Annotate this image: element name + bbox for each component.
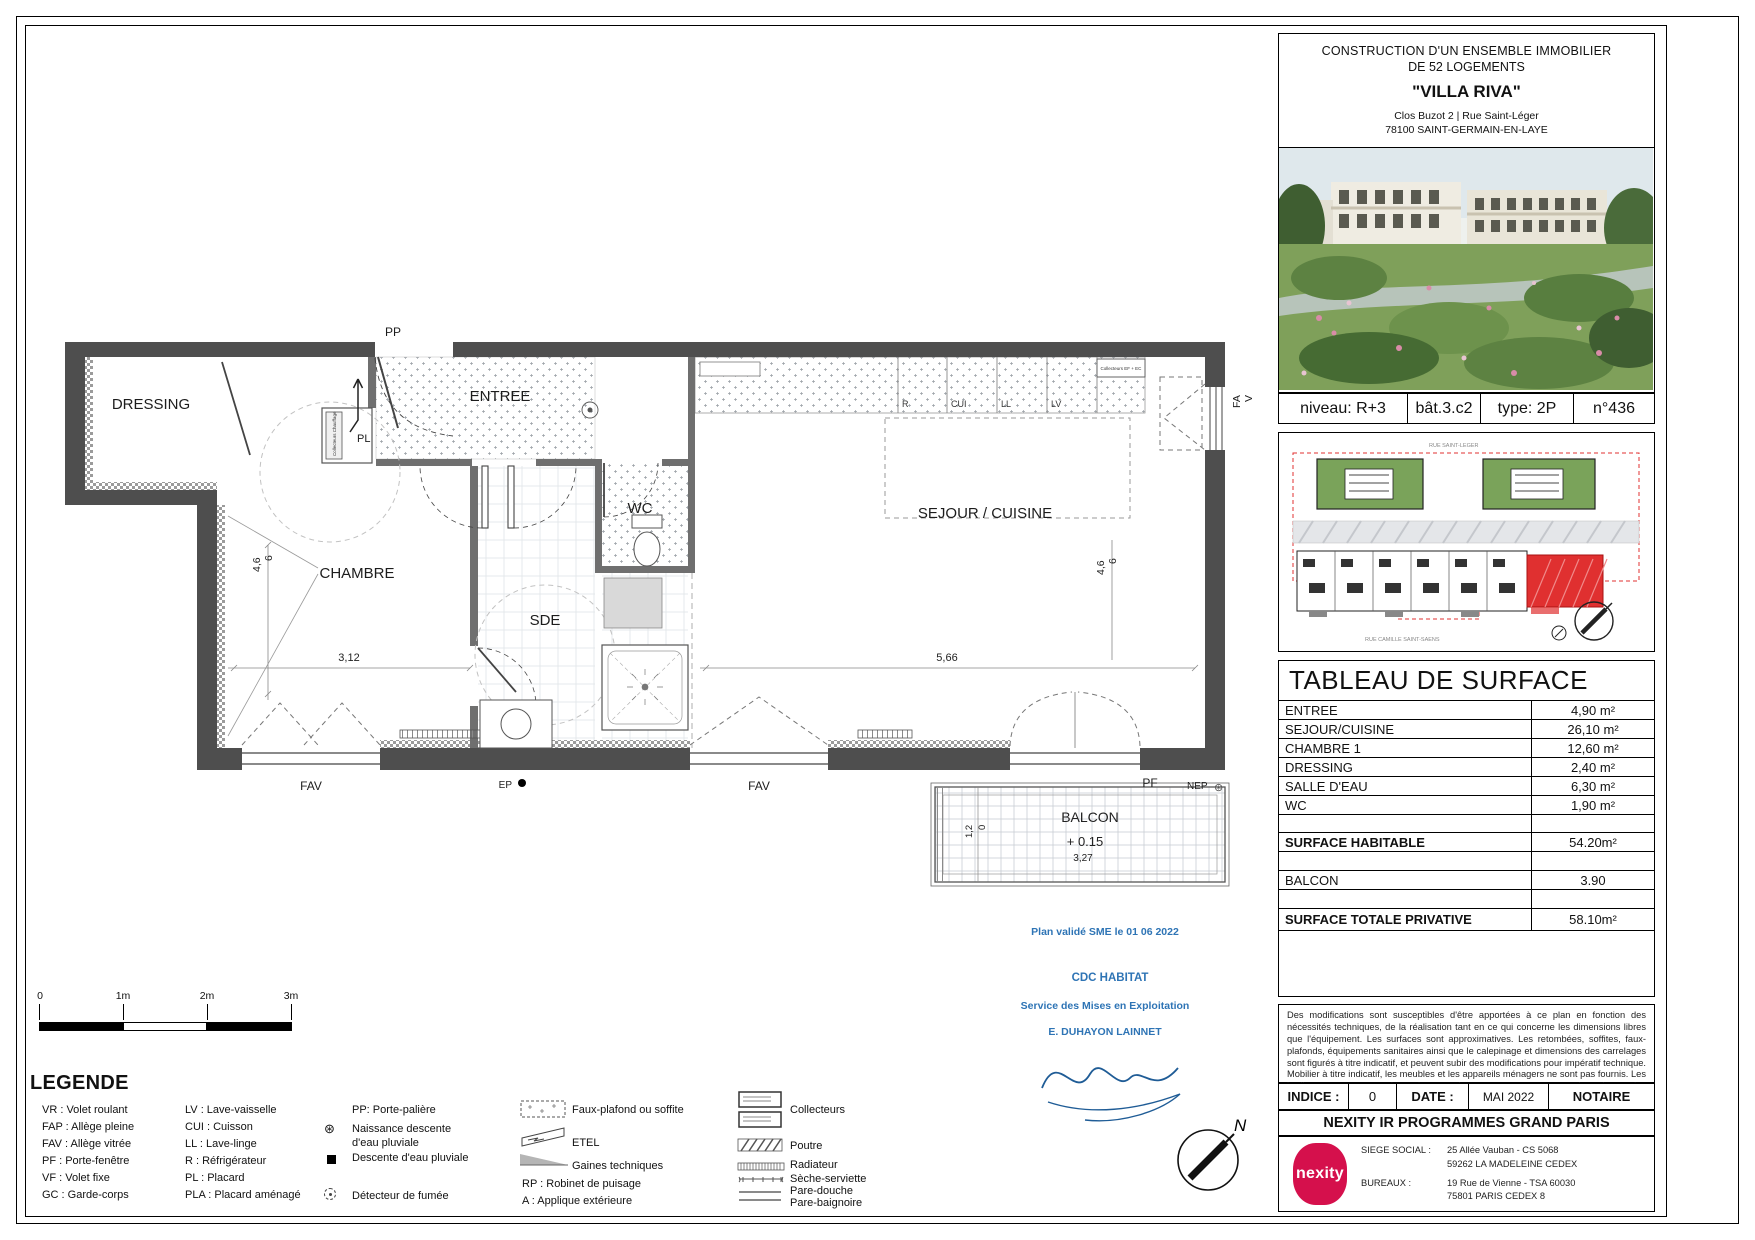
dim-sejour-h1: 4,6 <box>1095 560 1107 575</box>
indice-label: INDICE : <box>1279 1084 1349 1109</box>
legend-item: LV : Lave-vaisselle <box>185 1104 277 1116</box>
label-fav2: FAV <box>748 779 770 793</box>
notes-text: Des modifications sont susceptibles d'êt… <box>1278 1004 1655 1083</box>
dim-sejour-h2: 6 <box>1107 558 1119 564</box>
row-value: 4,90 m² <box>1532 701 1654 719</box>
gaines-icon <box>518 1152 570 1167</box>
floor-finishes <box>376 357 1145 748</box>
surface-table: TABLEAU DE SURFACE ENTREE4,90 m² SEJOUR/… <box>1278 660 1655 997</box>
sde-shower <box>602 645 688 730</box>
row-label: CHAMBRE 1 <box>1279 739 1532 757</box>
radiateur-icon <box>737 1162 785 1171</box>
siege-line1: 25 Allée Vauban - CS 5068 <box>1447 1144 1577 1157</box>
project-name: "VILLA RIVA" <box>1412 82 1521 102</box>
row-label: SURFACE HABITABLE <box>1279 833 1532 851</box>
table-row-total: SURFACE TOTALE PRIVATIVE58.10m² <box>1279 909 1654 931</box>
wc-toilet <box>632 515 662 566</box>
label-entree: ENTREE <box>470 388 531 405</box>
legend-item-pare-douche: Pare-douche <box>790 1185 853 1197</box>
row-value: 58.10m² <box>1532 909 1654 930</box>
legend-item-rp: RP : Robinet de puisage <box>522 1178 641 1190</box>
fridge-label: R <box>902 399 909 409</box>
project-address2: 78100 SAINT-GERMAIN-EN-LAYE <box>1385 123 1548 137</box>
validation-line3: Service des Mises en Exploitation <box>995 1000 1215 1012</box>
balcony-width-dim: 3,27 <box>1073 853 1093 864</box>
legend-item-descente: Descente d'eau pluviale <box>352 1152 470 1166</box>
site-compass-icon <box>1552 602 1613 640</box>
table-row-empty <box>1279 815 1654 833</box>
window-fa <box>1205 387 1225 450</box>
unit-building: bât.3.c2 <box>1408 394 1481 423</box>
row-value: 6,30 m² <box>1532 777 1654 795</box>
label-dressing: DRESSING <box>112 396 190 413</box>
table-row: SEJOUR/CUISINE26,10 m² <box>1279 720 1654 739</box>
street-band <box>1293 521 1639 543</box>
label-sde: SDE <box>530 612 561 629</box>
legend-item: FAP : Allège pleine <box>42 1121 134 1133</box>
legend-item: R : Réfrigérateur <box>185 1155 266 1167</box>
table-row-habitable: SURFACE HABITABLE54.20m² <box>1279 833 1654 852</box>
legend-item: CUI : Cuisson <box>185 1121 253 1133</box>
revision-row: INDICE : 0 DATE : MAI 2022 NOTAIRE <box>1278 1083 1655 1110</box>
naissance-icon: ⊛ <box>324 1122 335 1136</box>
label-chambre: CHAMBRE <box>319 565 394 582</box>
faux-plafond-icon <box>520 1100 566 1118</box>
row-label: SURFACE TOTALE PRIVATIVE <box>1279 909 1532 930</box>
label-fav1: FAV <box>300 779 322 793</box>
table-row: WC1,90 m² <box>1279 796 1654 815</box>
date-value: MAI 2022 <box>1469 1084 1549 1109</box>
row-value: 26,10 m² <box>1532 720 1654 738</box>
table-row: ENTREE4,90 m² <box>1279 701 1654 720</box>
bureaux-label: BUREAUX : <box>1361 1177 1443 1190</box>
sde-washbasin-unit <box>604 578 662 628</box>
row-label: WC <box>1279 796 1532 814</box>
hob-label: CUI <box>951 399 967 409</box>
legend-item-naissance: Naissance descente d'eau pluviale <box>352 1123 470 1151</box>
table-row-empty <box>1279 852 1654 871</box>
legend-item-applique: A : Applique extérieure <box>522 1195 632 1207</box>
sde-vanity <box>480 700 552 748</box>
dishwasher-label: LV <box>1051 399 1061 409</box>
etel-icon <box>520 1126 566 1148</box>
scale-bar: 0 1m 2m 3m <box>38 990 292 1040</box>
validation-line4: E. DUHAYON LAINNET <box>1010 1026 1200 1038</box>
lower-buildings <box>1297 551 1527 617</box>
label-ep: EP <box>499 780 513 791</box>
legend-item: PLA : Placard aménagé <box>185 1189 301 1201</box>
project-address1: Clos Buzot 2 | Rue Saint-Léger <box>1394 109 1539 123</box>
dim-chambre-h1: 4,6 <box>251 557 263 572</box>
descente-icon <box>327 1155 336 1164</box>
row-value: 12,60 m² <box>1532 739 1654 757</box>
poutre-icon <box>737 1138 783 1152</box>
balcony-level: + 0.15 <box>1067 834 1104 849</box>
seche-serviette-icon <box>737 1175 785 1184</box>
label-pp: PP <box>385 325 401 339</box>
legend-item-etel: ETEL <box>572 1137 600 1149</box>
legend-title: LEGENDE <box>30 1072 129 1095</box>
legend-item-seche: Sèche-serviette <box>790 1173 866 1185</box>
table-row-balcon: BALCON3.90 <box>1279 871 1654 890</box>
ep-dot <box>518 779 526 787</box>
unit-info-row: niveau: R+3 bât.3.c2 type: 2P n°436 <box>1278 393 1655 424</box>
validation-line1: Plan validé SME le 01 06 2022 <box>995 926 1215 938</box>
balcony-depth-dim1: 1,2 <box>964 825 975 838</box>
legend-item-pare-baignoire: Pare-baignoire <box>790 1197 862 1209</box>
unit-level: niveau: R+3 <box>1279 394 1408 423</box>
company-name-row: NEXITY IR PROGRAMMES GRAND PARIS <box>1278 1110 1655 1136</box>
legend-item: PF : Porte-fenêtre <box>42 1155 129 1167</box>
washer-label: LL <box>1001 399 1011 409</box>
street-top-label: RUE SAINT-LEGER <box>1429 443 1479 449</box>
surface-table-title: TABLEAU DE SURFACE <box>1279 661 1654 701</box>
collecteurs-icon <box>737 1090 783 1130</box>
dim-chambre-w: 3,12 <box>338 652 359 664</box>
floor-plan: Collecteurs EF + EC R CUI LL LV <box>0 315 1270 895</box>
project-line1: CONSTRUCTION D'UN ENSEMBLE IMMOBILIER <box>1322 44 1612 58</box>
row-label: SALLE D'EAU <box>1279 777 1532 795</box>
legend-item: PL : Placard <box>185 1172 245 1184</box>
row-label: SEJOUR/CUISINE <box>1279 720 1532 738</box>
highlighted-unit <box>1527 555 1607 614</box>
balcony-label: BALCON <box>1061 809 1119 825</box>
nep-symbol: ⊛ <box>1214 782 1223 794</box>
detecteur-icon <box>324 1188 336 1200</box>
legend-item-pp: PP: Porte-palière <box>352 1104 436 1116</box>
pl-collector-label: Collecteurs Chauffage <box>332 411 337 456</box>
row-value: 54.20m² <box>1532 833 1654 851</box>
row-label: BALCON <box>1279 871 1532 889</box>
scale-2m: 2m <box>200 990 215 1002</box>
siege-label: SIEGE SOCIAL : <box>1361 1144 1443 1157</box>
kitchen-collector-label: Collecteurs EF + EC <box>1101 366 1143 371</box>
legend-item-detecteur: Détecteur de fumée <box>352 1190 449 1202</box>
perspective-image <box>1278 148 1655 393</box>
legend-item-poutre: Poutre <box>790 1140 822 1152</box>
street-bottom-label: RUE CAMILLE SAINT-SAENS <box>1365 637 1440 643</box>
label-v: V <box>1243 395 1255 402</box>
upper-buildings <box>1317 459 1595 509</box>
site-plan: RUE SAINT-LEGER RUE CAMILLE SAINT-SAENS <box>1278 432 1655 652</box>
row-value: 1,90 m² <box>1532 796 1654 814</box>
row-label: DRESSING <box>1279 758 1532 776</box>
legend-item-radiateur: Radiateur <box>790 1159 838 1171</box>
balcony-depth-dim2: 0 <box>977 825 988 830</box>
compass-north-label: N <box>1234 1116 1247 1135</box>
company-addresses: SIEGE SOCIAL : 25 Allée Vauban - CS 5068… <box>1361 1144 1577 1204</box>
window-pf <box>1010 748 1140 770</box>
window-fav1 <box>242 748 380 770</box>
label-pf: PF <box>1142 776 1157 790</box>
table-row: SALLE D'EAU6,30 m² <box>1279 777 1654 796</box>
row-value: 2,40 m² <box>1532 758 1654 776</box>
notaire-label: NOTAIRE <box>1549 1084 1654 1109</box>
leader-lines <box>228 516 318 736</box>
label-sejour: SEJOUR / CUISINE <box>918 505 1052 522</box>
north-compass: N <box>1162 1105 1262 1205</box>
table-row-empty <box>1279 890 1654 909</box>
label-wc: WC <box>628 500 653 517</box>
legend-item: FAV : Allège vitrée <box>42 1138 131 1150</box>
indice-value: 0 <box>1349 1084 1397 1109</box>
legend-item: VR : Volet roulant <box>42 1104 128 1116</box>
unit-number: n°436 <box>1574 394 1654 423</box>
legend-item: LL : Lave-linge <box>185 1138 257 1150</box>
label-fa: FA <box>1231 395 1243 408</box>
dim-chambre-h2: 6 <box>263 555 275 561</box>
scale-0: 0 <box>37 990 43 1002</box>
table-row: CHAMBRE 112,60 m² <box>1279 739 1654 758</box>
dimension-lines <box>228 540 1198 700</box>
legend-item-gaines: Gaines techniques <box>572 1160 663 1172</box>
legend-item-faux-plafond: Faux-plafond ou soffite <box>572 1104 684 1116</box>
validation-line2: CDC HABITAT <box>1020 972 1200 984</box>
nexity-logo: nexity <box>1293 1143 1347 1205</box>
bureaux-line1: 19 Rue de Vienne - TSA 60030 <box>1447 1177 1577 1190</box>
unit-type: type: 2P <box>1481 394 1574 423</box>
row-value: 3.90 <box>1532 871 1654 889</box>
pare-douche-icon <box>737 1189 783 1203</box>
date-label: DATE : <box>1397 1084 1469 1109</box>
row-label: ENTREE <box>1279 701 1532 719</box>
scale-1m: 1m <box>116 990 131 1002</box>
bureaux-line2: 75801 PARIS CEDEX 8 <box>1447 1190 1577 1203</box>
label-pl: PL <box>357 433 370 445</box>
legend-item: GC : Garde-corps <box>42 1189 129 1201</box>
legend-item: VF : Volet fixe <box>42 1172 110 1184</box>
legend-item-collecteurs: Collecteurs <box>790 1104 845 1116</box>
window-fav2 <box>690 748 828 770</box>
balcony: BALCON + 0.15 3,27 1,2 0 <box>931 783 1229 886</box>
siege-line2: 59262 LA MADELEINE CEDEX <box>1447 1158 1577 1171</box>
project-line2: DE 52 LOGEMENTS <box>1408 60 1525 74</box>
title-block: CONSTRUCTION D'UN ENSEMBLE IMMOBILIER DE… <box>1278 33 1655 148</box>
company-block: nexity SIEGE SOCIAL : 25 Allée Vauban - … <box>1278 1136 1655 1212</box>
table-row: DRESSING2,40 m² <box>1279 758 1654 777</box>
label-nep: NEP <box>1187 781 1208 792</box>
dim-sejour-w: 5,66 <box>936 652 957 664</box>
scale-3m: 3m <box>284 990 299 1002</box>
